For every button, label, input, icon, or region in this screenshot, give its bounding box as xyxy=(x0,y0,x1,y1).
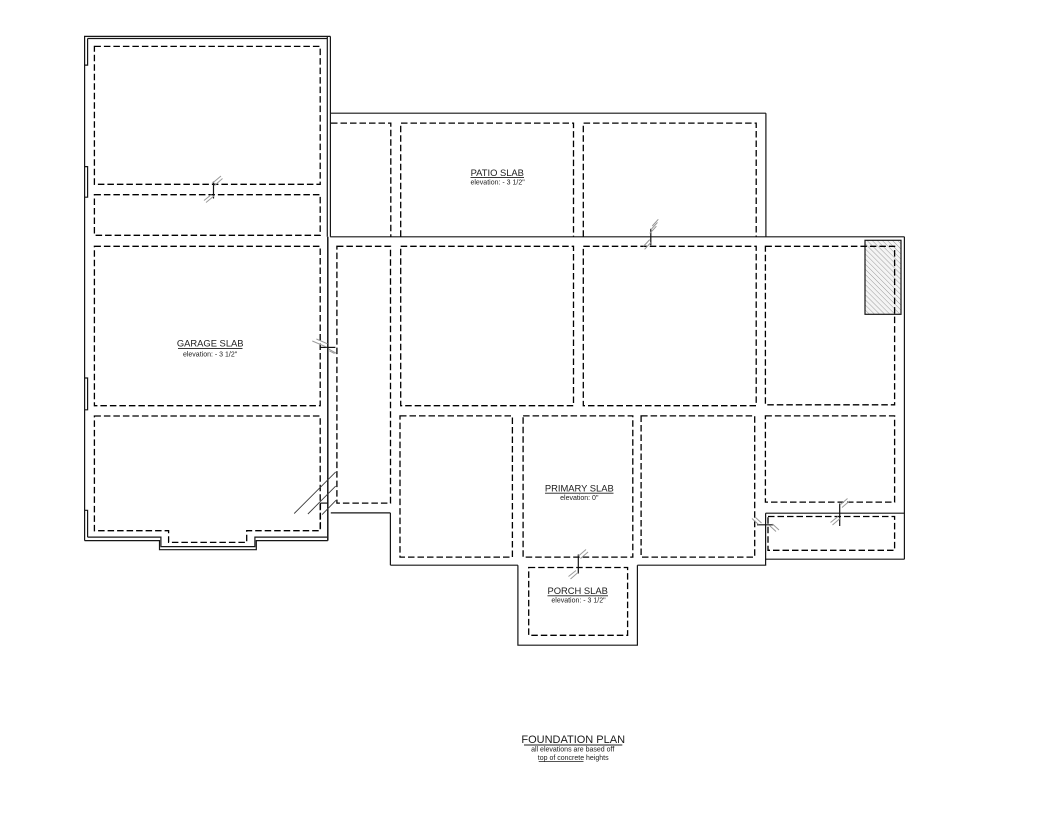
svg-text:elevation: 0": elevation: 0" xyxy=(560,495,599,502)
svg-text:top of concrete heights: top of concrete heights xyxy=(538,755,609,762)
svg-text:FOUNDATION PLAN: FOUNDATION PLAN xyxy=(521,734,625,746)
svg-text:elevation: - 3 1/2": elevation: - 3 1/2" xyxy=(470,180,525,187)
svg-text:all elevations are based off: all elevations are based off xyxy=(531,747,614,754)
svg-text:elevation: - 3 1/2": elevation: - 3 1/2" xyxy=(551,597,606,604)
svg-text:GARAGE SLAB: GARAGE SLAB xyxy=(177,338,244,349)
svg-text:elevation: - 3 1/2": elevation: - 3 1/2" xyxy=(183,351,238,358)
svg-text:PATIO SLAB: PATIO SLAB xyxy=(471,167,524,178)
svg-text:PRIMARY SLAB: PRIMARY SLAB xyxy=(545,483,614,494)
svg-text:PORCH SLAB: PORCH SLAB xyxy=(547,585,607,596)
